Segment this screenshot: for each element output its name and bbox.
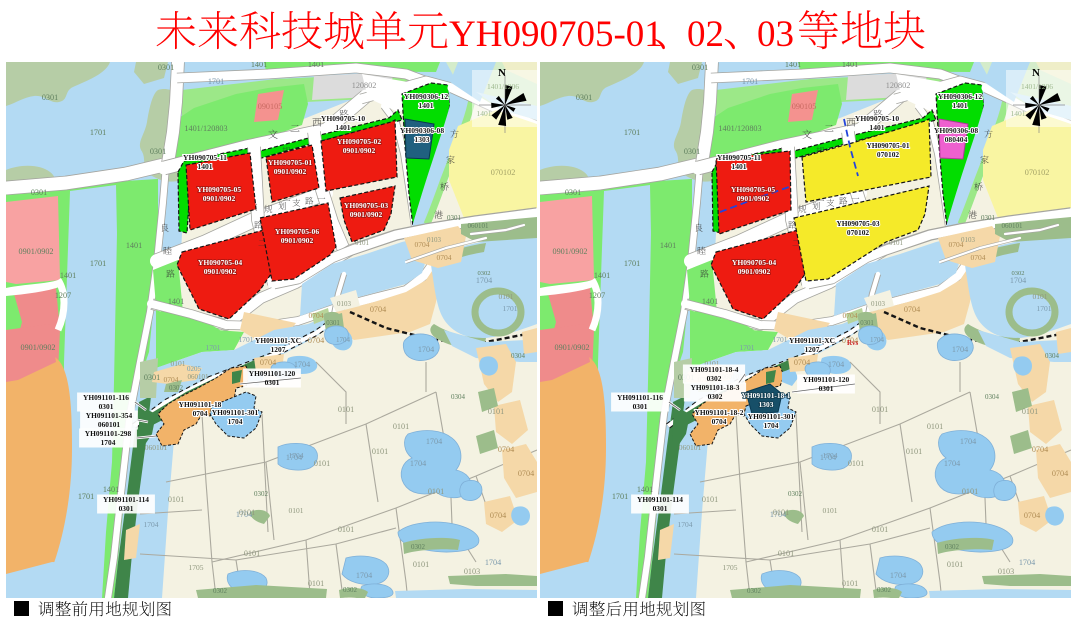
svg-text:YH090705-03: YH090705-03 bbox=[344, 201, 388, 210]
svg-text:0301: 0301 bbox=[819, 384, 834, 393]
svg-text:YH091101-18-1: YH091101-18-1 bbox=[742, 391, 791, 400]
svg-text:060101: 060101 bbox=[98, 420, 120, 429]
svg-text:YH090705-02: YH090705-02 bbox=[337, 137, 381, 146]
svg-text:070102: 070102 bbox=[847, 228, 869, 237]
svg-text:1401: 1401 bbox=[335, 123, 350, 132]
svg-text:0704: 0704 bbox=[193, 409, 208, 418]
svg-text:YH091101-298: YH091101-298 bbox=[85, 429, 132, 438]
svg-text:YH091101-XC: YH091101-XC bbox=[255, 336, 301, 345]
svg-text:YH091101-120: YH091101-120 bbox=[249, 369, 296, 378]
svg-text:0302: 0302 bbox=[707, 374, 722, 383]
svg-text:YH090705-01: YH090705-01 bbox=[449, 14, 663, 55]
svg-text:1207: 1207 bbox=[271, 345, 286, 354]
svg-text:YH091101-114: YH091101-114 bbox=[637, 495, 683, 504]
svg-text:0901/0902: 0901/0902 bbox=[274, 167, 307, 176]
svg-text:0901/0902: 0901/0902 bbox=[203, 194, 236, 203]
svg-text:YH091101-120: YH091101-120 bbox=[803, 375, 850, 384]
svg-text:YH090705-01: YH090705-01 bbox=[866, 141, 909, 150]
svg-text:YH091101-301: YH091101-301 bbox=[748, 412, 795, 421]
svg-text:YH090705-10: YH090705-10 bbox=[321, 114, 365, 123]
svg-text:1704: 1704 bbox=[764, 421, 779, 430]
svg-text:YH090705-11: YH090705-11 bbox=[717, 153, 761, 162]
svg-text:03: 03 bbox=[757, 14, 794, 55]
svg-text:YH091101-116: YH091101-116 bbox=[83, 393, 129, 402]
svg-text:1303: 1303 bbox=[759, 400, 774, 409]
svg-text:0301: 0301 bbox=[119, 504, 134, 513]
svg-text:1704: 1704 bbox=[228, 417, 243, 426]
svg-text:YH090306-08: YH090306-08 bbox=[934, 126, 978, 135]
svg-text:YH090705-01: YH090705-01 bbox=[268, 158, 312, 167]
svg-text:02: 02 bbox=[687, 14, 724, 55]
svg-text:1704: 1704 bbox=[101, 438, 116, 447]
svg-text:0302: 0302 bbox=[708, 392, 723, 401]
svg-text:1401: 1401 bbox=[197, 162, 212, 171]
svg-text:YH090705-03: YH090705-03 bbox=[836, 219, 879, 228]
svg-text:0704: 0704 bbox=[712, 417, 727, 426]
svg-text:YH090705-11: YH090705-11 bbox=[183, 153, 227, 162]
svg-text:Rvs: Rvs bbox=[847, 339, 859, 347]
svg-text:YH090705-05: YH090705-05 bbox=[197, 185, 241, 194]
svg-text:YH090705-10: YH090705-10 bbox=[855, 114, 899, 123]
svg-text:0301: 0301 bbox=[265, 378, 280, 387]
svg-text:YH091101-114: YH091101-114 bbox=[103, 495, 149, 504]
svg-text:0901/0902: 0901/0902 bbox=[343, 146, 376, 155]
svg-text:YH091101-XC: YH091101-XC bbox=[789, 336, 835, 345]
svg-text:0301: 0301 bbox=[99, 402, 114, 411]
svg-text:0901/0902: 0901/0902 bbox=[281, 236, 314, 245]
svg-text:0901/0902: 0901/0902 bbox=[350, 210, 383, 219]
svg-text:070102: 070102 bbox=[877, 150, 899, 159]
svg-text:YH091101-301: YH091101-301 bbox=[212, 408, 259, 417]
svg-text:1401: 1401 bbox=[731, 162, 746, 171]
svg-text:0901/0902: 0901/0902 bbox=[737, 194, 770, 203]
svg-text:0301: 0301 bbox=[653, 504, 668, 513]
svg-text:YH091101-18-3: YH091101-18-3 bbox=[691, 383, 740, 392]
svg-text:0301: 0301 bbox=[633, 402, 648, 411]
svg-text:YH091101-116: YH091101-116 bbox=[617, 393, 663, 402]
svg-text:1207: 1207 bbox=[805, 345, 820, 354]
svg-text:1303: 1303 bbox=[414, 135, 429, 144]
svg-text:YH090705-06: YH090705-06 bbox=[275, 227, 319, 236]
svg-text:YH091101-18-4: YH091101-18-4 bbox=[690, 365, 739, 374]
svg-text:YH090705-05: YH090705-05 bbox=[731, 185, 775, 194]
svg-text:YH090306-08: YH090306-08 bbox=[400, 126, 444, 135]
svg-text:080404: 080404 bbox=[945, 135, 968, 144]
svg-text:1401: 1401 bbox=[869, 123, 884, 132]
svg-text:YH091101-354: YH091101-354 bbox=[86, 411, 133, 420]
svg-text:YH091101-18-2: YH091101-18-2 bbox=[695, 408, 744, 417]
